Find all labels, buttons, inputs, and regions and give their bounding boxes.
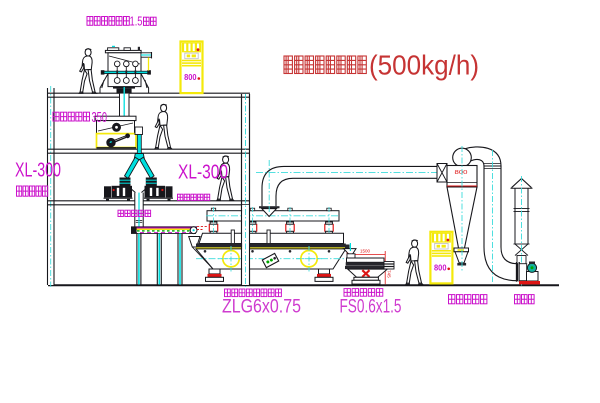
svg-text:350: 350 [92, 109, 108, 126]
svg-text:800: 800 [184, 72, 197, 82]
svg-text:FS0.6x1.5: FS0.6x1.5 [340, 296, 402, 318]
svg-text:(500kg/h): (500kg/h) [369, 50, 479, 81]
svg-text:800: 800 [455, 170, 468, 176]
svg-text:XL-300: XL-300 [15, 160, 61, 182]
svg-text:800: 800 [434, 262, 447, 272]
svg-text:ZLG6x0.75: ZLG6x0.75 [222, 296, 301, 318]
svg-text:1500: 1500 [360, 249, 371, 254]
svg-text:745: 745 [387, 270, 392, 278]
svg-text:1.5: 1.5 [130, 13, 143, 28]
svg-text:XL-300: XL-300 [178, 162, 228, 184]
